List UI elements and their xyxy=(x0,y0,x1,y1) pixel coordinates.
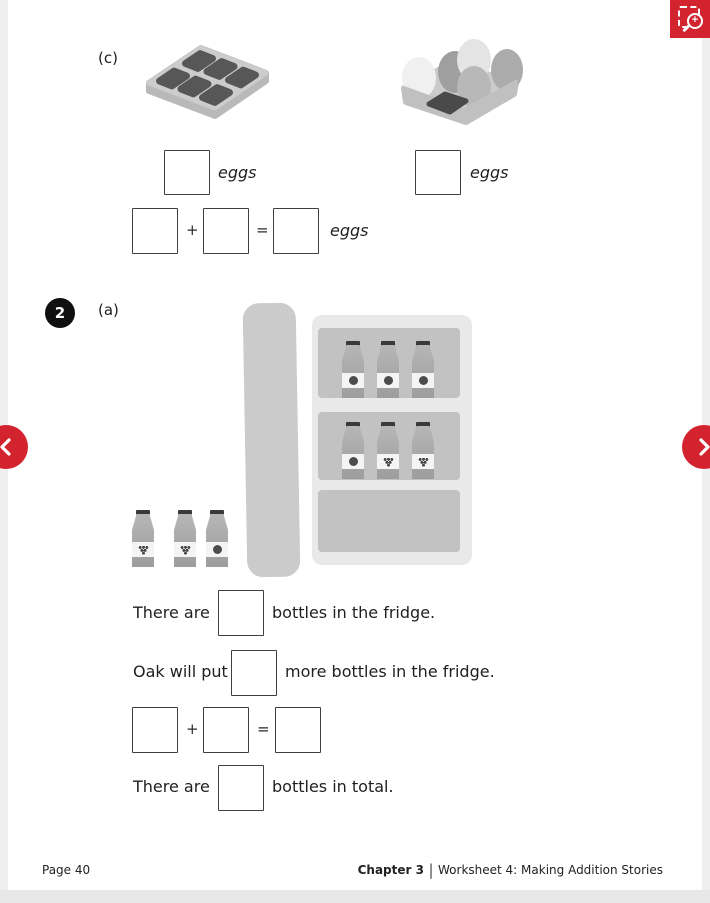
line1-prefix: There are xyxy=(133,602,210,623)
line4-prefix: There are xyxy=(133,776,210,797)
bottle-body xyxy=(377,345,399,398)
bottle-body xyxy=(377,426,399,479)
answer-box-q2-addend-2 xyxy=(203,707,249,753)
grapes-icon xyxy=(180,545,191,555)
orange-icon xyxy=(213,545,222,554)
c-equals-sign: = xyxy=(256,222,269,239)
tray-eggs-caption: eggs xyxy=(218,162,257,183)
footer-worksheet-title: Worksheet 4: Making Addition Stories xyxy=(438,863,663,877)
orange-icon xyxy=(384,376,393,385)
grapes-icon xyxy=(383,457,394,467)
orange-icon xyxy=(349,376,358,385)
bottle-label xyxy=(342,373,364,388)
answer-box-line1 xyxy=(218,590,264,636)
answer-box-line4 xyxy=(218,765,264,811)
question-part-label: (a) xyxy=(98,301,119,320)
fridge-shelf-bottom xyxy=(318,490,460,552)
zoom-region-button[interactable] xyxy=(670,0,710,38)
bottle-label xyxy=(132,542,154,557)
answer-box-q2-addend-1 xyxy=(132,707,178,753)
line2-prefix: Oak will put xyxy=(133,661,228,682)
bottle-body xyxy=(412,426,434,479)
bottle-label xyxy=(377,454,399,469)
bottle xyxy=(342,422,364,479)
footer-worksheet-ref: Chapter 3|Worksheet 4: Making Addition S… xyxy=(358,863,663,877)
bottle xyxy=(412,341,434,398)
orange-icon xyxy=(419,376,428,385)
bottle-label xyxy=(174,542,196,557)
line1-suffix: bottles in the fridge. xyxy=(272,602,435,623)
chevron-right-icon xyxy=(691,434,710,460)
bottle-body xyxy=(342,426,364,479)
c-plus-sign: + xyxy=(186,222,199,239)
bottle xyxy=(132,510,154,567)
answer-box-c-sum xyxy=(273,208,319,254)
bottle-body xyxy=(206,514,228,567)
bottle-body xyxy=(412,345,434,398)
carton-eggs-caption: eggs xyxy=(470,162,509,183)
bottle xyxy=(342,341,364,398)
bottle xyxy=(412,422,434,479)
fridge-door xyxy=(243,303,301,578)
answer-box-carton-count xyxy=(415,150,461,195)
answer-box-line2 xyxy=(231,650,277,696)
bottom-gutter xyxy=(0,890,710,903)
egg-tray-illustration xyxy=(139,36,275,120)
bottle-body xyxy=(174,514,196,567)
grapes-icon xyxy=(418,457,429,467)
bottle-body xyxy=(132,514,154,567)
bottle xyxy=(174,510,196,567)
footer-chapter: Chapter 3 xyxy=(358,863,424,877)
answer-box-c-addend-1 xyxy=(132,208,178,254)
answer-box-q2-sum xyxy=(275,707,321,753)
q2-plus-sign: + xyxy=(186,721,199,738)
bottle xyxy=(206,510,228,567)
bottle-label xyxy=(342,454,364,469)
bottle xyxy=(377,341,399,398)
orange-icon xyxy=(349,457,358,466)
question-number-badge: 2 xyxy=(45,298,75,328)
answer-box-c-addend-2 xyxy=(203,208,249,254)
q2-equals-sign: = xyxy=(257,721,270,738)
footer-separator: | xyxy=(429,861,433,879)
bottle xyxy=(377,422,399,479)
line4-suffix: bottles in total. xyxy=(272,776,394,797)
chevron-left-icon xyxy=(0,434,19,460)
bottle-label xyxy=(412,454,434,469)
c-sum-eggs-caption: eggs xyxy=(330,220,369,241)
footer-page-number: Page 40 xyxy=(42,863,90,877)
line2-suffix: more bottles in the fridge. xyxy=(285,661,495,682)
bottle-label xyxy=(412,373,434,388)
grapes-icon xyxy=(138,545,149,555)
section-c-label: (c) xyxy=(98,49,118,68)
bottle-label xyxy=(206,542,228,557)
bottle-label xyxy=(377,373,399,388)
egg-carton-illustration xyxy=(396,32,524,130)
bottle-body xyxy=(342,345,364,398)
zoom-region-icon xyxy=(670,0,710,38)
answer-box-tray-count xyxy=(164,150,210,195)
